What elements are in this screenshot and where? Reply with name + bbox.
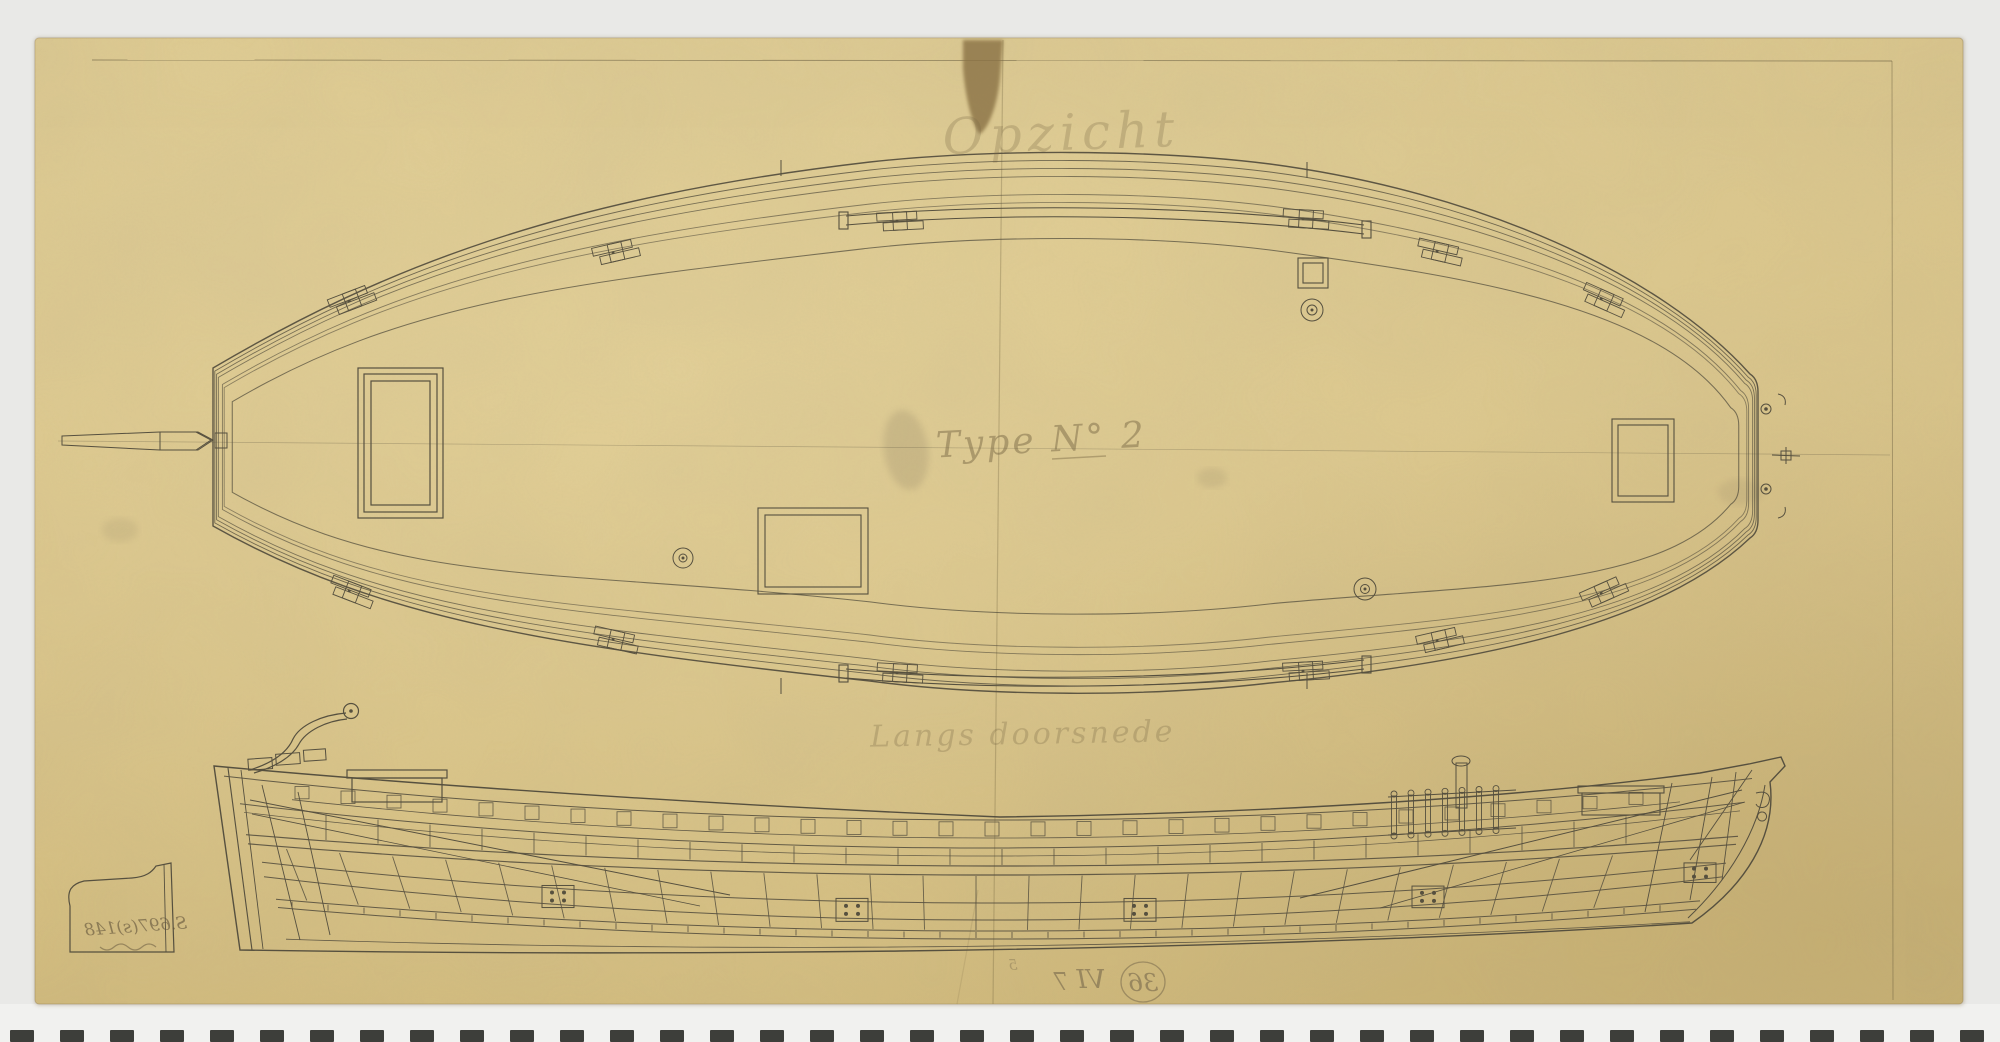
film-strip-dash [1060, 1030, 1084, 1042]
folio-digit: 7 [1053, 968, 1069, 996]
film-strip-dash [960, 1030, 984, 1042]
folio-circle-number: 36 [1128, 969, 1159, 997]
paper-texture [35, 38, 1963, 1004]
cleat-bolt [612, 251, 614, 253]
film-strip-dash [760, 1030, 784, 1042]
bolt-dot [563, 899, 566, 902]
label-top-view: Opzicht [942, 100, 1182, 166]
film-strip-dash [1360, 1030, 1384, 1042]
film-strip-dash [1110, 1030, 1134, 1042]
film-strip-dash [110, 1030, 134, 1042]
bolt-dot [551, 891, 554, 894]
film-strip-dash [1260, 1030, 1284, 1042]
film-strip-dash [910, 1030, 934, 1042]
bolt-dot [1421, 891, 1424, 894]
film-strip-dash [1860, 1030, 1884, 1042]
film-strip-dash [1560, 1030, 1584, 1042]
film-strip-dash [860, 1030, 884, 1042]
bolt-dot [1433, 899, 1436, 902]
film-strip-dash [560, 1030, 584, 1042]
cleat-bolt [896, 220, 898, 222]
cleat-bolt [896, 672, 898, 674]
film-strip-dash [260, 1030, 284, 1042]
film-strip-dash [1810, 1030, 1834, 1042]
film-strip-dash [1010, 1030, 1034, 1042]
film-strip-dash [1410, 1030, 1434, 1042]
bolt-dot [1693, 875, 1696, 878]
film-strip-dash [410, 1030, 434, 1042]
film-strip-dash [1160, 1030, 1184, 1042]
bolt-dot [1133, 912, 1136, 915]
film-strip-background [0, 1004, 2000, 1042]
film-strip-dash [1910, 1030, 1934, 1042]
margin-mark: 5 [1008, 956, 1018, 974]
film-strip-dash [460, 1030, 484, 1042]
smudge-stain-left [102, 518, 138, 542]
film-strip-dash [810, 1030, 834, 1042]
film-strip-dash [660, 1030, 684, 1042]
paper-sheet [34, 37, 1965, 1006]
film-strip-dash [1610, 1030, 1634, 1042]
bolt-dot [1421, 899, 1424, 902]
bolt-dot [857, 904, 860, 907]
bolt-dot [1705, 875, 1708, 878]
film-strip-dash [510, 1030, 534, 1042]
cleat-bolt [348, 300, 351, 303]
film-strip-dash [1210, 1030, 1234, 1042]
label-side-view: Langs doorsnede [869, 714, 1176, 754]
cleat-bolt [1436, 639, 1438, 641]
drawing-canvas: Opzicht Type N° 2 Langs doorsnede S.697(… [0, 0, 2000, 1042]
bolt-dot [845, 912, 848, 915]
film-strip-dash [610, 1030, 634, 1042]
film-strip-dash [10, 1030, 34, 1042]
bolt-dot [845, 904, 848, 907]
film-strip-dash [1510, 1030, 1534, 1042]
smudge-stain-small [1197, 468, 1227, 488]
bolt-dot [1145, 912, 1148, 915]
cleat-bolt [1302, 670, 1304, 672]
cleat-bolt [1302, 218, 1304, 220]
cleat-bolt [612, 638, 614, 640]
bolt-dot [1433, 891, 1436, 894]
film-strip-dash [710, 1030, 734, 1042]
film-strip-dash [60, 1030, 84, 1042]
paper-grain [35, 38, 1963, 1004]
film-strip-dash [210, 1030, 234, 1042]
film-strip-dash [1310, 1030, 1334, 1042]
bolt-dot [563, 891, 566, 894]
film-strip-dash [360, 1030, 384, 1042]
cleat-bolt [1436, 250, 1438, 252]
bolt-dot [551, 899, 554, 902]
film-strip-dash [1760, 1030, 1784, 1042]
film-strip-dash [1460, 1030, 1484, 1042]
cleat-bolt [1600, 592, 1603, 595]
film-strip-dash [1660, 1030, 1684, 1042]
film-strip-dash [160, 1030, 184, 1042]
film-strip-dash [1960, 1030, 1984, 1042]
bolt-dot [1693, 867, 1696, 870]
film-strip-dash [1710, 1030, 1734, 1042]
bolt-dot [1705, 867, 1708, 870]
bolt-dot [857, 912, 860, 915]
bolt-dot [1145, 904, 1148, 907]
cleat-bolt [348, 590, 351, 593]
smudge-stain-right [1718, 479, 1762, 505]
cleat-bolt [1600, 297, 1603, 300]
bolt-dot [1133, 904, 1136, 907]
film-strip-dash [310, 1030, 334, 1042]
scanned-ship-plan: Opzicht Type N° 2 Langs doorsnede S.697(… [0, 0, 2000, 1042]
folio-roman: VI [1076, 965, 1106, 995]
